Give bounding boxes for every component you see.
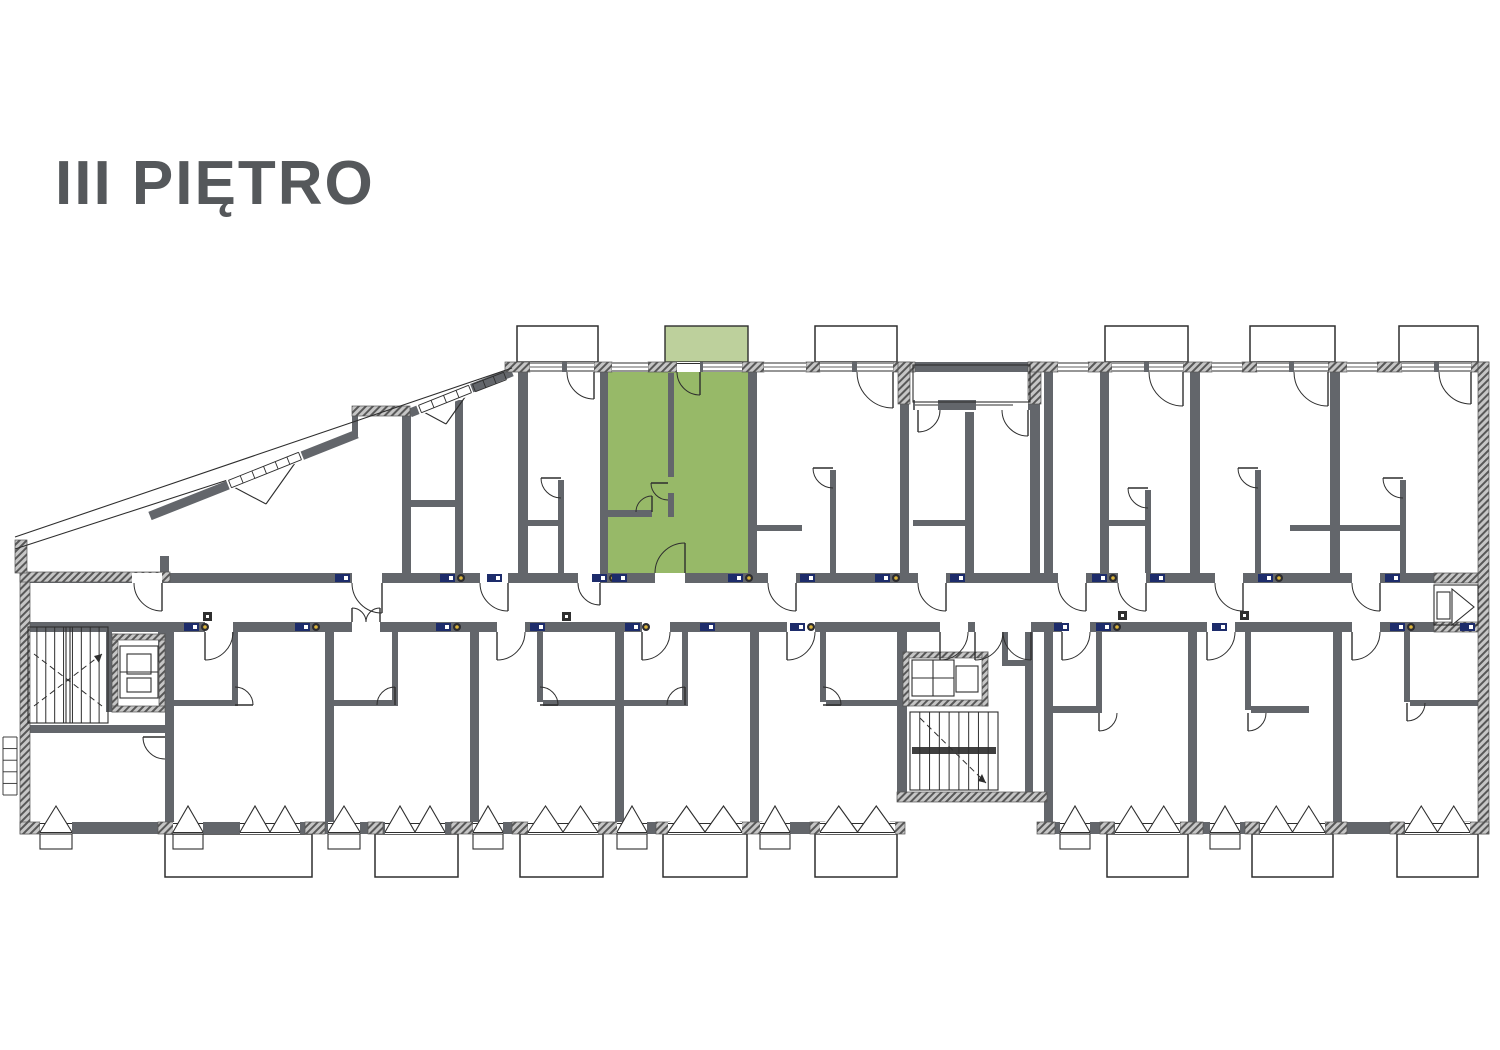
hatched-wall <box>897 792 1047 802</box>
outline-thin-layer <box>15 368 954 723</box>
wall <box>1251 706 1309 713</box>
wall-marker-dot-center <box>203 625 207 629</box>
wall-layer <box>20 362 1489 834</box>
highlighted-unit-balcony[interactable] <box>665 326 748 362</box>
wall <box>1044 706 1102 713</box>
balcony-outline <box>1105 326 1188 362</box>
wall <box>965 412 974 573</box>
door-opening <box>1352 622 1380 632</box>
stair-direction-layer <box>34 654 986 783</box>
thin-box <box>1210 834 1240 849</box>
wall <box>1096 632 1102 710</box>
hatched-wall <box>1245 822 1259 834</box>
door-swing-arc <box>567 372 594 399</box>
balcony-outline <box>815 834 897 877</box>
wall <box>1002 660 1030 666</box>
door-swing-arc <box>143 737 165 759</box>
wall <box>232 632 238 702</box>
hatched-wall <box>505 362 530 372</box>
wall <box>527 520 558 526</box>
wall-marker-dot-center <box>1115 625 1119 629</box>
door-swing-arc <box>1118 583 1146 611</box>
balcony-outline <box>165 834 312 877</box>
wall <box>830 470 836 573</box>
wall-marker-slot <box>601 576 605 580</box>
wall <box>518 372 528 573</box>
wall <box>1190 372 1200 573</box>
wall-marker-slot <box>449 576 453 580</box>
door-swing-arc <box>352 608 366 622</box>
door-swing-arc <box>918 410 940 432</box>
wall-marker-slot <box>1394 576 1398 580</box>
door-opening <box>1058 573 1086 583</box>
junction-box-layer <box>203 611 1249 621</box>
door-opening <box>940 622 968 632</box>
thin-box <box>956 666 978 692</box>
door-opening <box>1352 573 1380 583</box>
wall-marker-slot <box>709 625 713 629</box>
hatched-wall <box>158 822 174 834</box>
wall-marker-slot <box>737 576 741 580</box>
highlighted-unit[interactable] <box>607 372 748 573</box>
junction-box-center <box>206 615 209 618</box>
wall <box>1340 525 1400 531</box>
hatched-wall <box>648 362 677 372</box>
hatched-wall <box>1088 362 1112 372</box>
door-swing-arc <box>578 583 600 605</box>
wall-marker-dot-center <box>1277 576 1281 580</box>
wall-marker-dot-center <box>314 625 318 629</box>
wall <box>1290 525 1330 531</box>
hatched-wall <box>1390 822 1404 834</box>
wall <box>1333 632 1342 822</box>
balcony-outline <box>375 834 458 877</box>
door-swing-arc <box>1149 372 1183 406</box>
wall-marker-dot-center <box>894 576 898 580</box>
window-opening-triangle <box>1060 806 1090 832</box>
hatched-wall <box>1377 362 1402 372</box>
wall-marker-slot <box>539 625 543 629</box>
thin-box <box>127 678 151 692</box>
wall <box>402 412 411 573</box>
wall <box>1100 520 1145 526</box>
balcony-outline <box>663 834 747 877</box>
door-swing-arc <box>1352 632 1380 660</box>
thin-box <box>473 834 503 849</box>
door-swing-arc <box>918 583 946 611</box>
wall-marker-slot <box>344 576 348 580</box>
stair-arrow <box>94 654 102 663</box>
wall-marker-slot <box>1105 625 1109 629</box>
wall <box>1030 402 1040 573</box>
door-swing-arc <box>1294 372 1328 406</box>
door-swing-arc <box>134 583 162 611</box>
wall-marker-slot <box>799 625 803 629</box>
wall-marker-slot <box>959 576 963 580</box>
door-swing-arc <box>1248 713 1266 731</box>
hatched-wall <box>903 652 909 706</box>
wall-marker-dot-center <box>455 625 459 629</box>
hatched-wall <box>1242 362 1257 372</box>
balcony-outline <box>815 326 897 362</box>
junction-box-center <box>1243 614 1246 617</box>
door-opening <box>205 622 233 632</box>
wall <box>1025 632 1033 792</box>
thin-box <box>127 654 151 674</box>
door-swing-arc <box>1352 583 1380 611</box>
hatched-wall <box>806 362 820 372</box>
wall-marker-slot <box>809 576 813 580</box>
door-swing-arc <box>787 632 815 660</box>
wall <box>1044 372 1053 573</box>
door-swing-arc <box>1062 632 1090 660</box>
hatched-wall <box>512 822 528 834</box>
wall <box>1145 490 1151 573</box>
hatched-wall <box>1028 362 1058 372</box>
door-swing-arc <box>1058 583 1086 611</box>
wall <box>748 372 757 573</box>
window-opening-triangle <box>40 806 72 832</box>
wall <box>455 400 463 573</box>
floor-plan <box>0 0 1500 1050</box>
door-swing-arc <box>205 632 233 660</box>
wall <box>470 632 479 822</box>
junction-box-center <box>565 615 568 618</box>
balcony-outline <box>520 834 603 877</box>
window-opening-triangle <box>173 806 203 832</box>
door-swing-arc <box>1002 410 1028 436</box>
hatched-wall <box>742 362 764 372</box>
wall <box>1404 632 1410 702</box>
outline-thin <box>15 476 240 549</box>
door-swing-arc <box>642 632 670 660</box>
wall <box>600 372 608 573</box>
balcony-outline <box>1399 326 1478 362</box>
hatched-wall <box>368 822 383 834</box>
door-opening <box>1118 573 1146 583</box>
door-swing-arc <box>1099 713 1117 731</box>
wall-marker-dot-center <box>644 625 648 629</box>
window-opening-triangle <box>760 806 790 832</box>
wall-marker-slot <box>304 625 308 629</box>
wall <box>668 373 674 477</box>
wall <box>607 510 652 517</box>
hatched-wall <box>656 822 670 834</box>
thin-box <box>760 834 790 849</box>
wall-marker-dot-center <box>1111 576 1115 580</box>
wall-marker-slot <box>621 576 625 580</box>
thin-box <box>1060 834 1090 849</box>
door-swing-arc <box>857 372 893 408</box>
door-swing-arc <box>497 632 525 660</box>
hatched-wall <box>903 700 988 706</box>
wall-marker-slot <box>634 625 638 629</box>
wall-marker-slot <box>1399 625 1403 629</box>
wall <box>325 700 398 706</box>
door-swing-arc <box>768 583 796 611</box>
wall <box>668 493 674 517</box>
wall <box>757 525 802 531</box>
wall-marker-slot <box>1101 576 1105 580</box>
wall <box>106 632 112 712</box>
wall-marker-slot <box>1267 576 1271 580</box>
hatched-wall <box>594 362 612 372</box>
wall <box>615 632 624 822</box>
door-opening <box>132 573 162 583</box>
door-opening <box>975 622 1031 632</box>
door-opening <box>352 622 380 632</box>
hatched-wall <box>1100 822 1114 834</box>
balcony-outline <box>1250 326 1335 362</box>
wall-marker-slot <box>1221 625 1225 629</box>
door-swing-arc <box>480 583 508 611</box>
door-opening <box>655 573 685 583</box>
balcony-outline <box>517 326 598 362</box>
wall-marker-dot-center <box>1409 625 1413 629</box>
wall <box>615 700 688 706</box>
wall-marker-slot <box>1469 625 1473 629</box>
wall <box>407 500 455 507</box>
hatched-wall <box>352 406 410 416</box>
hatched-wall <box>1183 362 1212 372</box>
hatched-wall <box>1478 362 1489 834</box>
stair-arrow <box>978 774 986 783</box>
wall <box>913 520 965 526</box>
hatched-wall <box>1180 822 1203 834</box>
hatched-wall <box>20 822 40 834</box>
door-opening <box>497 622 525 632</box>
stair-landing-layer <box>912 747 996 754</box>
hatched-wall <box>112 634 118 712</box>
wall <box>165 700 238 706</box>
hatched-wall <box>740 822 762 834</box>
stairs <box>28 627 108 723</box>
hatched-wall <box>451 822 473 834</box>
wall <box>1100 372 1109 573</box>
wall <box>1400 480 1406 573</box>
wall <box>1330 372 1340 573</box>
wall <box>1188 632 1197 822</box>
wall <box>1255 470 1261 573</box>
wall-marker-slot <box>884 576 888 580</box>
wall <box>537 632 543 702</box>
door-swing-arc <box>1215 583 1243 611</box>
balcony-outline <box>1397 834 1478 877</box>
outline-thin <box>15 368 512 537</box>
hatched-wall <box>159 634 165 712</box>
entry-door-triangle <box>1452 589 1474 625</box>
door-opening <box>1215 573 1243 583</box>
wall-marker-slot <box>193 625 197 629</box>
wall <box>900 402 909 573</box>
hatched-wall <box>112 634 165 640</box>
wall <box>558 480 564 573</box>
door-swing-arc <box>1207 632 1235 660</box>
door-opening <box>768 573 796 583</box>
page: III PIĘTRO <box>0 0 1500 1050</box>
wall-marker-dot-center <box>809 625 813 629</box>
wall <box>820 632 826 702</box>
thin-box <box>173 834 203 849</box>
entry-door-triangle-layer <box>1452 589 1474 625</box>
thin-box <box>617 834 647 849</box>
hatched-wall <box>1434 573 1478 583</box>
wall <box>325 632 334 822</box>
wall-marker-slot <box>445 625 449 629</box>
wall-marker-slot <box>496 576 500 580</box>
balcony-outline <box>1252 834 1333 877</box>
wall-marker-dot-center <box>459 576 463 580</box>
hatched-wall <box>982 652 988 706</box>
window-opening-triangle <box>1210 806 1240 832</box>
hatched-wall <box>112 706 165 712</box>
wall <box>25 725 165 733</box>
thin-box <box>40 834 72 849</box>
wall-marker-slot <box>1159 576 1163 580</box>
wall <box>750 632 759 822</box>
hatched-wall <box>1325 822 1347 834</box>
hatched-wall <box>1037 822 1055 834</box>
hatched-wall <box>898 362 910 404</box>
thin-box <box>1437 592 1450 619</box>
junction-box-center <box>1121 614 1124 617</box>
wall <box>1044 632 1053 834</box>
hatched-wall <box>15 540 27 573</box>
balcony-outline <box>1107 834 1188 877</box>
hatched-wall <box>1328 362 1347 372</box>
door-swing-arc <box>1439 372 1471 404</box>
thin-box <box>328 834 360 849</box>
wall <box>1245 632 1251 710</box>
stair-landing <box>912 747 996 754</box>
wall-marker-slot <box>1063 625 1067 629</box>
hatched-wall <box>305 822 325 834</box>
door-opening <box>352 573 382 583</box>
wall <box>1410 700 1480 706</box>
hatched-wall <box>596 822 618 834</box>
wall-marker-dot-center <box>747 576 751 580</box>
door-opening <box>918 573 946 583</box>
